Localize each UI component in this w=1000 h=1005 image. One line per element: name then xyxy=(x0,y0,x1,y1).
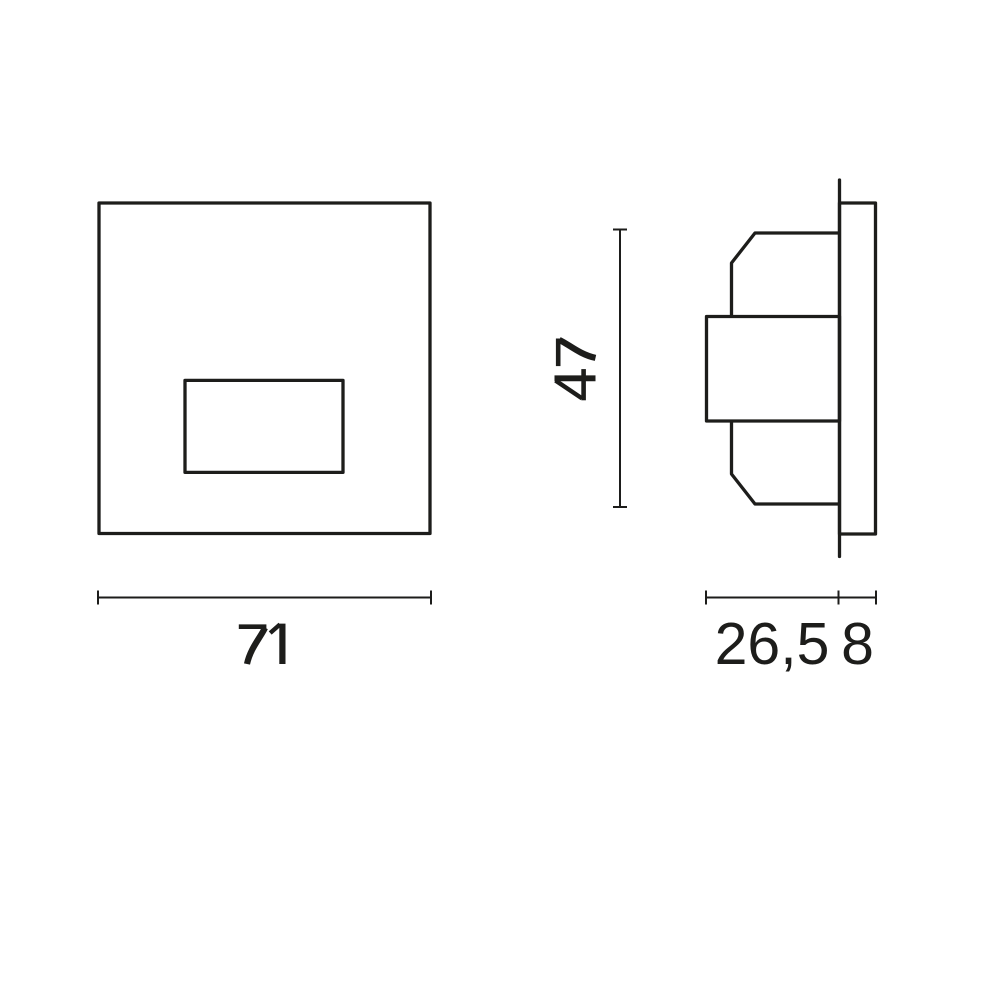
svg-text:26,5: 26,5 xyxy=(715,611,830,677)
svg-text:8: 8 xyxy=(841,611,874,677)
